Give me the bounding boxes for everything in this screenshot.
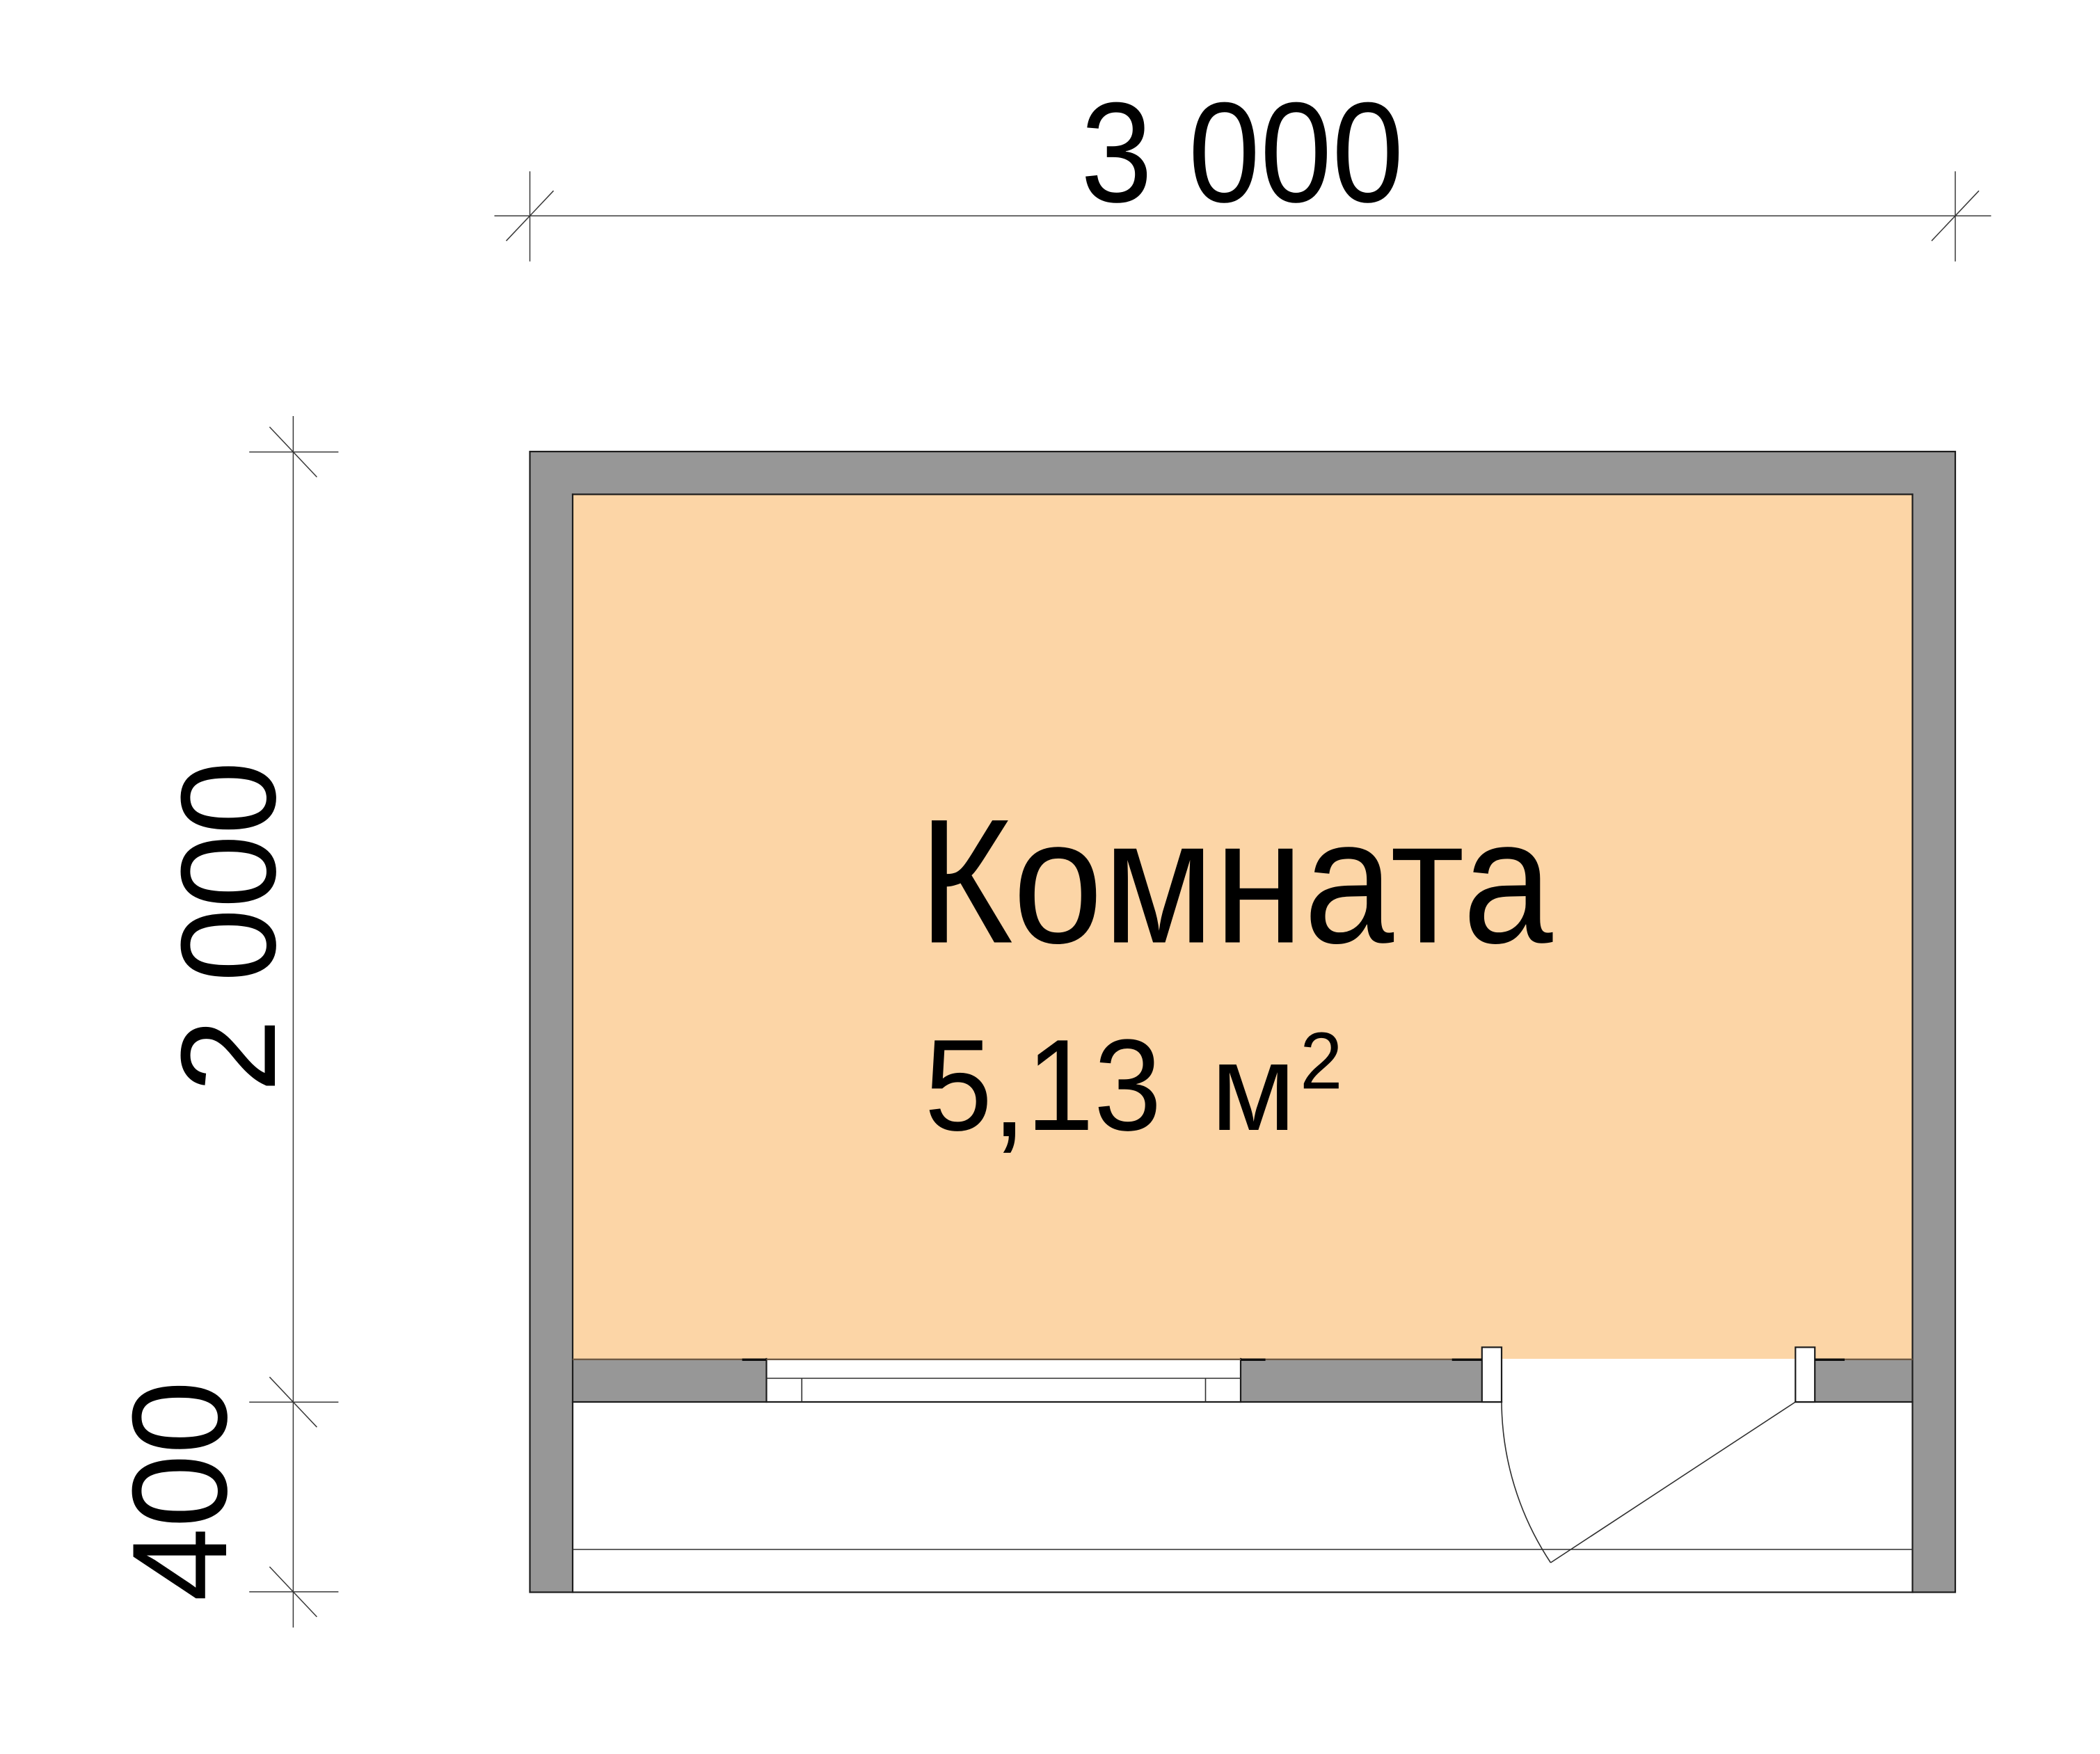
svg-text:Комната: Комната (918, 782, 1553, 980)
svg-text:400: 400 (104, 1380, 255, 1601)
svg-text:м: м (1211, 1018, 1296, 1156)
svg-text:3 000: 3 000 (1081, 73, 1403, 232)
svg-text:5,13: 5,13 (925, 1013, 1162, 1165)
svg-text:2: 2 (1300, 1016, 1342, 1106)
svg-text:2 000: 2 000 (152, 761, 303, 1092)
